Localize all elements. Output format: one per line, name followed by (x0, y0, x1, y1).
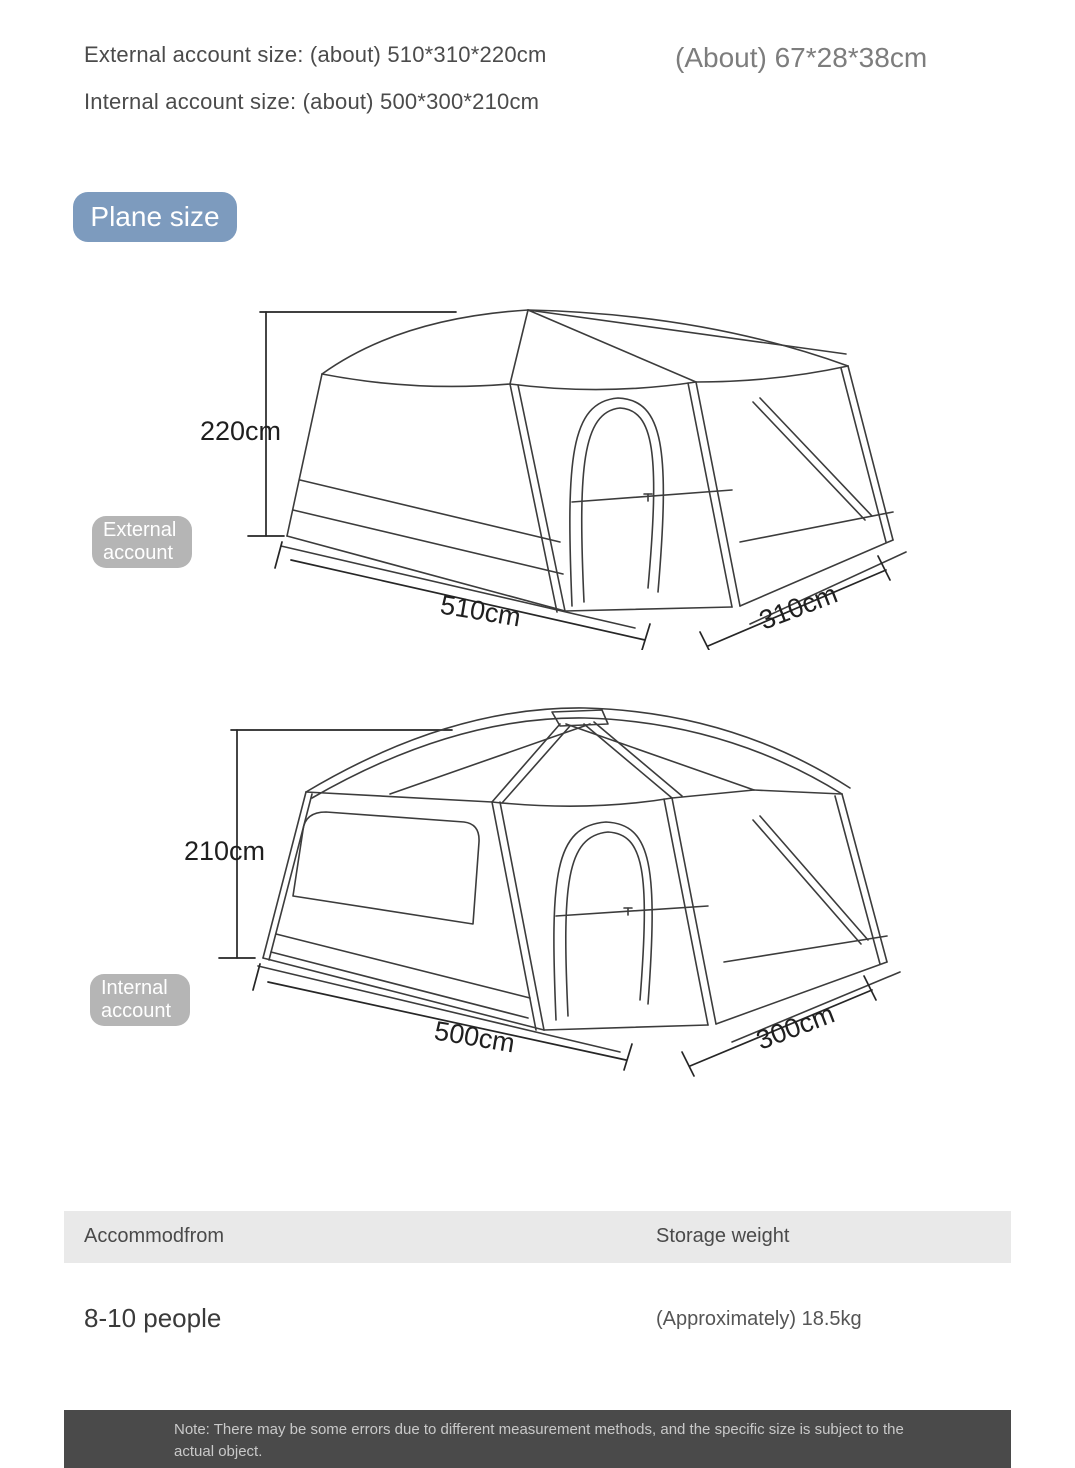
internal-account-badge: Internal account (90, 974, 190, 1026)
capacity-value: 8-10 people (84, 1303, 221, 1334)
storage-weight-value: (Approximately) 18.5kg (656, 1308, 862, 1331)
external-height-label: 220cm (200, 416, 281, 447)
internal-height-label: 210cm (184, 836, 265, 867)
external-badge-line2: account (103, 542, 192, 565)
note-text: Note: There may be some errors due to di… (174, 1419, 919, 1463)
spec-table-header-row: Accommodfrom Storage weight (64, 1211, 1011, 1263)
spec-col2-header: Storage weight (656, 1225, 789, 1248)
external-size-text: External account size: (about) 510*310*2… (84, 42, 547, 68)
external-badge-line1: External (103, 519, 192, 542)
plane-size-badge: Plane size (73, 192, 237, 242)
external-account-badge: External account (92, 516, 192, 568)
internal-size-text: Internal account size: (about) 500*300*2… (84, 89, 539, 115)
spec-col1-header: Accommodfrom (84, 1225, 224, 1248)
product-size-page: External account size: (about) 510*310*2… (0, 0, 1075, 1468)
internal-badge-line1: Internal (101, 977, 190, 1000)
packed-size-text: (About) 67*28*38cm (675, 42, 927, 74)
note-bar: Note: There may be some errors due to di… (64, 1410, 1011, 1468)
internal-badge-line2: account (101, 1000, 190, 1023)
